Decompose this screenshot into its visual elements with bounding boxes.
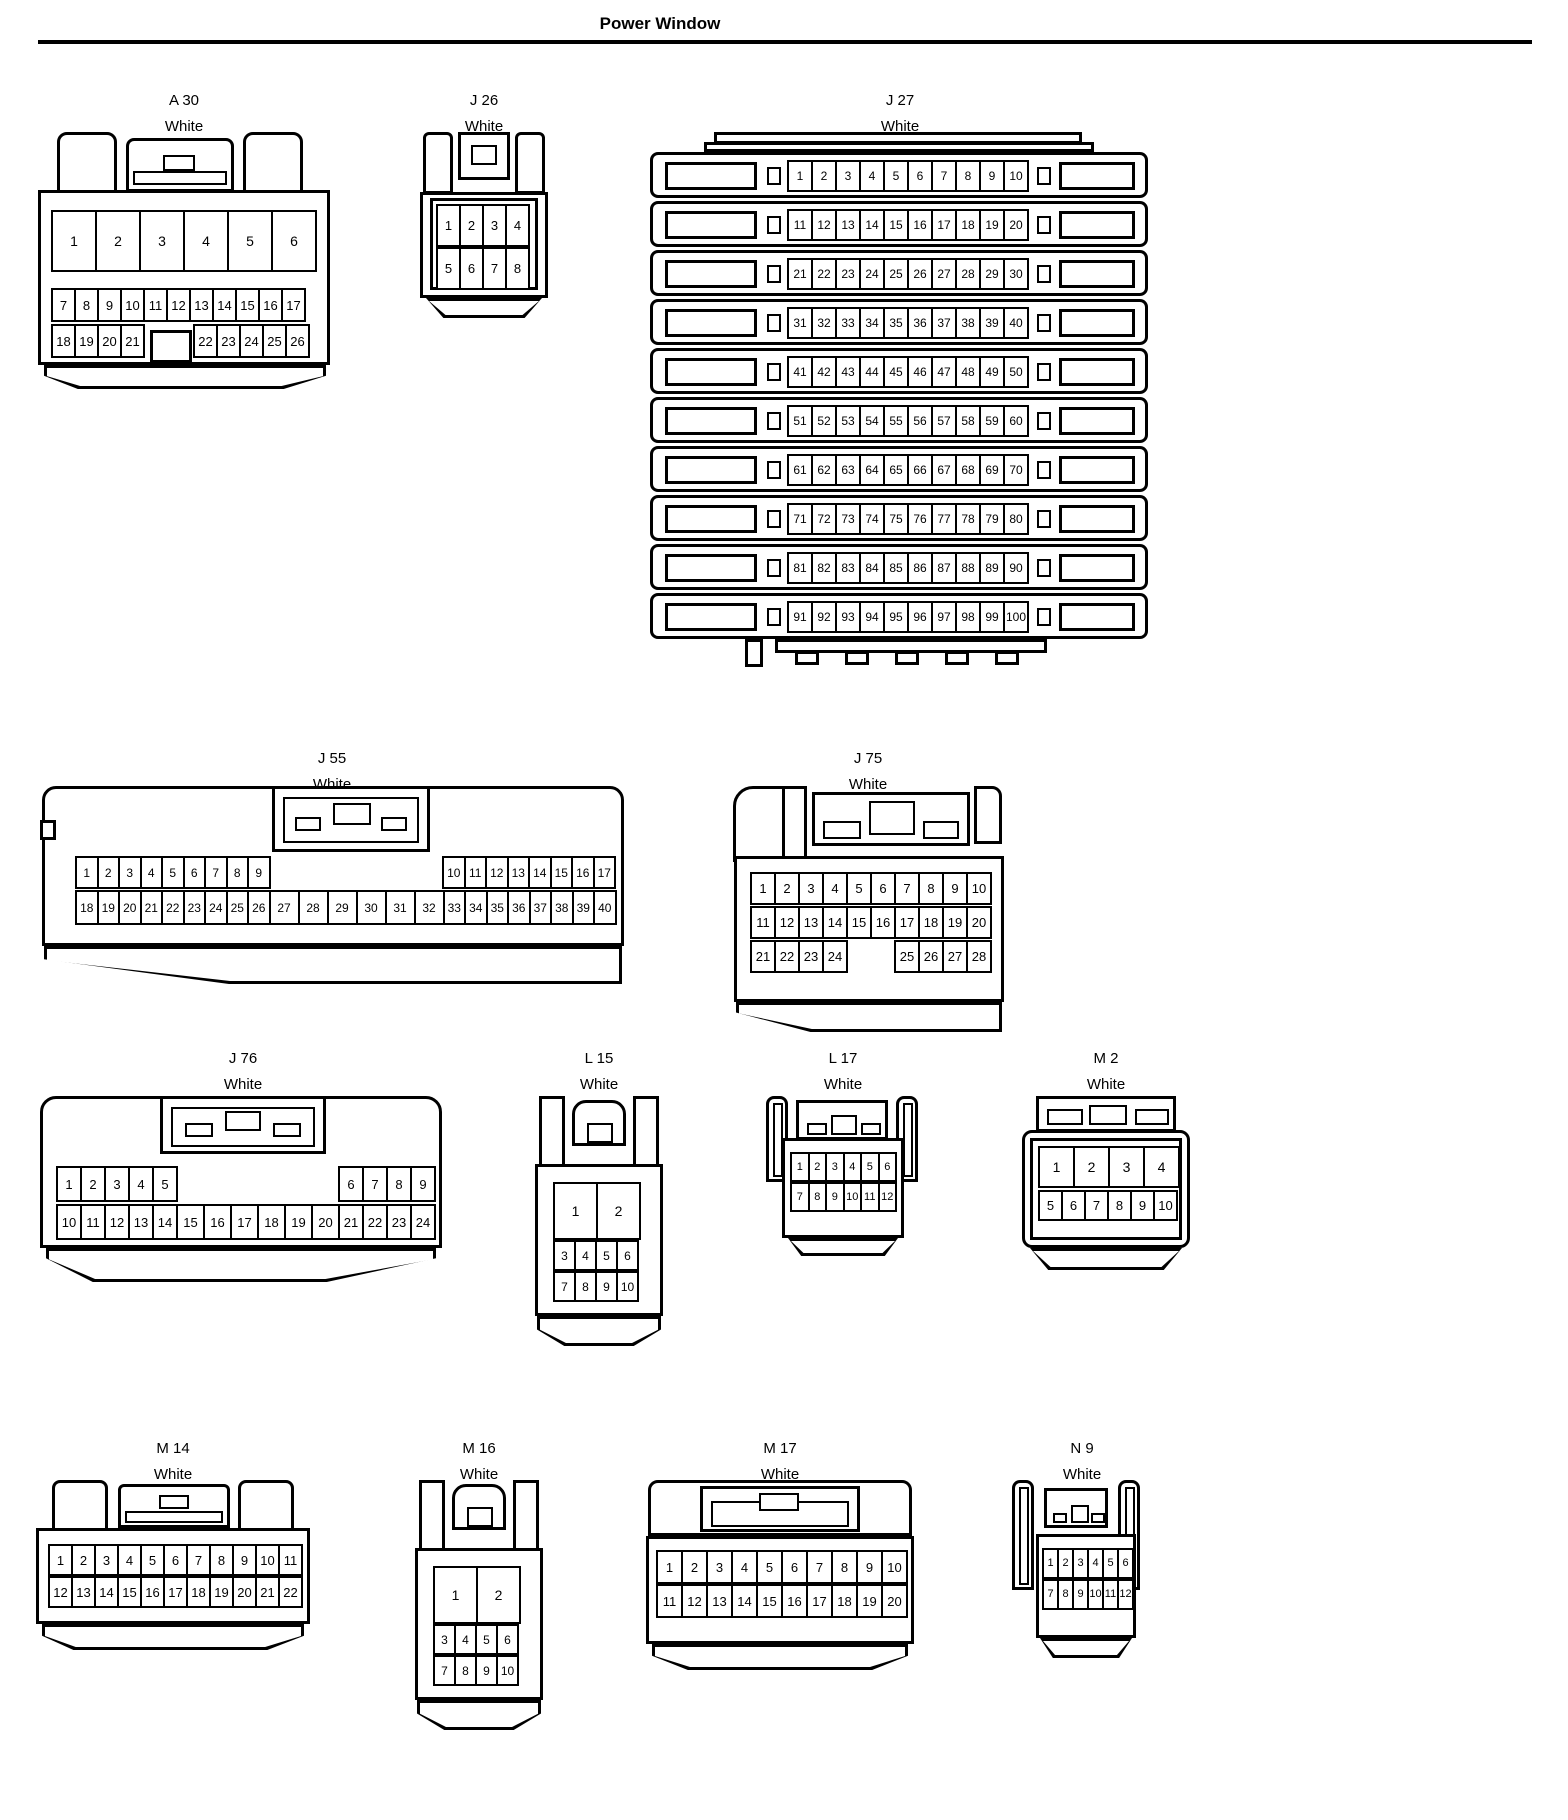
j27-row-right-square — [1037, 510, 1051, 528]
pin-cell: 9 — [247, 856, 271, 889]
pin-cell: 17 — [894, 906, 920, 939]
pin-cell: 5 — [1038, 1190, 1063, 1221]
j27-bottom-tooth — [795, 651, 819, 665]
pin-cell: 18 — [257, 1204, 286, 1240]
pin-cell: 66 — [907, 454, 933, 486]
pin-cell: 13 — [128, 1204, 154, 1240]
pin-cell: 6 — [1117, 1548, 1134, 1579]
j27-pin-row: 11121314151617181920 — [787, 209, 1029, 241]
pin-cell: 8 — [918, 872, 944, 905]
pin-cell: 2 — [1073, 1146, 1110, 1188]
pin-cell: 79 — [979, 503, 1005, 535]
l15-prong-left — [539, 1096, 565, 1168]
j27-row-right-square — [1037, 167, 1051, 185]
pin-cell: 96 — [907, 601, 933, 633]
pin-cell: 13 — [507, 856, 531, 889]
j26-pin-row-1: 1234 — [436, 204, 530, 247]
j27-row-right-box — [1059, 554, 1135, 582]
pin-cell: 24 — [204, 890, 228, 925]
pin-cell: 18 — [918, 906, 944, 939]
l15-pin-row-1: 12 — [553, 1182, 641, 1240]
connector-j76-label: J 76 — [229, 1050, 257, 1067]
a30-skirt — [44, 365, 326, 389]
pin-cell: 43 — [835, 356, 861, 388]
pin-cell: 23 — [386, 1204, 412, 1240]
pin-cell: 21 — [338, 1204, 364, 1240]
pin-cell: 8 — [386, 1166, 412, 1202]
j76-latch-side-right — [273, 1123, 301, 1137]
pin-cell: 4 — [140, 856, 164, 889]
j27-row-left-square — [767, 608, 781, 626]
l17-pin-row-1: 123456 — [790, 1152, 897, 1182]
pin-cell: 8 — [505, 247, 530, 290]
pin-cell: 8 — [574, 1271, 597, 1302]
pin-cell: 22 — [193, 324, 218, 358]
pin-cell: 16 — [907, 209, 933, 241]
pin-cell: 18 — [75, 890, 99, 925]
pin-cell: 20 — [232, 1576, 257, 1608]
pin-cell: 22 — [161, 890, 185, 925]
connector-j55-label: J 55 — [318, 750, 346, 767]
pin-cell: 34 — [464, 890, 488, 925]
m14-pin-row-2: 1213141516171819202122 — [48, 1576, 303, 1608]
a30-latch-band — [133, 171, 227, 185]
pin-cell: 1 — [48, 1544, 73, 1576]
pin-cell: 18 — [955, 209, 981, 241]
pin-cell: 21 — [120, 324, 145, 358]
j27-row: 51525354555657585960 — [650, 397, 1148, 443]
pin-cell: 19 — [284, 1204, 313, 1240]
j27-row: 71727374757677787980 — [650, 495, 1148, 541]
pin-cell: 25 — [262, 324, 287, 358]
pin-cell: 3 — [482, 204, 507, 247]
pin-cell: 37 — [931, 307, 957, 339]
n9-prong-left — [1012, 1480, 1034, 1590]
j27-row-left-box — [665, 554, 757, 582]
j75-tab-left-divider — [782, 789, 785, 859]
pin-cell: 14 — [152, 1204, 178, 1240]
pin-cell: 17 — [931, 209, 957, 241]
pin-cell: 4 — [117, 1544, 142, 1576]
pin-cell: 57 — [931, 405, 957, 437]
j27-pin-row: 81828384858687888990 — [787, 552, 1029, 584]
j27-row: 12345678910 — [650, 152, 1148, 198]
j75-tab-left — [733, 786, 807, 862]
pin-cell: 33 — [835, 307, 861, 339]
pin-cell: 19 — [979, 209, 1005, 241]
pin-cell: 15 — [117, 1576, 142, 1608]
j27-pin-row: 31323334353637383940 — [787, 307, 1029, 339]
pin-cell: 3 — [706, 1550, 733, 1584]
j26-skirt — [426, 298, 542, 318]
pin-cell: 31 — [385, 890, 416, 925]
pin-cell: 6 — [163, 1544, 188, 1576]
pin-cell: 25 — [883, 258, 909, 290]
pin-cell: 2 — [681, 1550, 708, 1584]
pin-cell: 35 — [883, 307, 909, 339]
pin-cell: 3 — [553, 1240, 576, 1271]
m16-latch — [452, 1484, 506, 1530]
pin-cell: 3 — [94, 1544, 119, 1576]
pin-cell: 35 — [486, 890, 510, 925]
m16-pin-row-1: 12 — [433, 1566, 521, 1624]
n9-latch-side-right — [1091, 1513, 1105, 1523]
m16-pin-row-2: 3456 — [433, 1624, 519, 1655]
pin-cell: 8 — [209, 1544, 234, 1576]
pin-cell: 6 — [338, 1166, 364, 1202]
pin-cell: 8 — [955, 160, 981, 192]
pin-cell: 5 — [846, 872, 872, 905]
pin-cell: 10 — [966, 872, 992, 905]
pin-cell: 18 — [51, 324, 76, 358]
pin-cell: 14 — [859, 209, 885, 241]
pin-cell: 4 — [1143, 1146, 1180, 1188]
pin-cell: 10 — [255, 1544, 280, 1576]
j27-row-left-box — [665, 358, 757, 386]
m17-latch-knob — [759, 1493, 799, 1511]
pin-cell: 32 — [811, 307, 837, 339]
m16-prong-right — [513, 1480, 539, 1552]
pin-cell: 23 — [798, 940, 824, 973]
j55-pin-row-1-left: 123456789 — [75, 856, 271, 889]
m2-latch-side-right — [1135, 1109, 1169, 1125]
pin-cell: 6 — [616, 1240, 639, 1271]
pin-cell: 37 — [529, 890, 553, 925]
pin-cell: 87 — [931, 552, 957, 584]
j27-bottom-tooth — [895, 651, 919, 665]
pin-cell: 28 — [955, 258, 981, 290]
j27-pin-row: 919293949596979899100 — [787, 601, 1029, 633]
pin-cell: 3 — [1108, 1146, 1145, 1188]
pin-cell: 2 — [97, 856, 121, 889]
pin-cell: 75 — [883, 503, 909, 535]
connector-n9-label: N 9 — [1070, 1440, 1093, 1457]
pin-cell: 44 — [859, 356, 885, 388]
pin-cell: 18 — [186, 1576, 211, 1608]
pin-cell: 36 — [907, 307, 933, 339]
l17-latch-knob — [831, 1115, 857, 1135]
j27-bottom-tooth — [995, 651, 1019, 665]
n9-latch-side-left — [1053, 1513, 1067, 1523]
m2-pin-row-1: 1234 — [1038, 1146, 1180, 1188]
pin-cell: 4 — [128, 1166, 154, 1202]
pin-cell: 41 — [787, 356, 813, 388]
pin-cell: 22 — [278, 1576, 303, 1608]
pin-cell: 33 — [443, 890, 467, 925]
j27-bottom-tooth — [845, 651, 869, 665]
pin-cell: 86 — [907, 552, 933, 584]
pin-cell: 15 — [550, 856, 574, 889]
m16-latch-knob — [467, 1507, 493, 1527]
pin-cell: 82 — [811, 552, 837, 584]
m17-latch — [700, 1486, 860, 1532]
m14-pin-row-1: 1234567891011 — [48, 1544, 303, 1576]
j27-pin-row: 41424344454647484950 — [787, 356, 1029, 388]
connector-l15-label: L 15 — [585, 1050, 614, 1067]
pin-cell: 1 — [75, 856, 99, 889]
pin-cell: 28 — [966, 940, 992, 973]
j55-latch — [272, 786, 430, 852]
pin-cell: 1 — [553, 1182, 598, 1240]
connector-n9-color: White — [1063, 1466, 1101, 1483]
j27-row-right-square — [1037, 216, 1051, 234]
pin-cell: 2 — [80, 1166, 106, 1202]
title-rule — [38, 40, 1532, 44]
pin-cell: 7 — [204, 856, 228, 889]
pin-cell: 98 — [955, 601, 981, 633]
j27-row-right-square — [1037, 412, 1051, 430]
pin-cell: 26 — [247, 890, 271, 925]
j75-skirt — [736, 1002, 1002, 1032]
pin-cell: 20 — [311, 1204, 340, 1240]
j27-row-left-square — [767, 314, 781, 332]
pin-cell: 14 — [212, 288, 237, 322]
j27-row-left-box — [665, 260, 757, 288]
pin-cell: 9 — [595, 1271, 618, 1302]
j27-row: 919293949596979899100 — [650, 593, 1148, 639]
pin-cell: 14 — [528, 856, 552, 889]
l17-pin-row-2: 789101112 — [790, 1182, 897, 1212]
pin-cell: 7 — [51, 288, 76, 322]
pin-cell: 12 — [878, 1182, 898, 1212]
m2-skirt — [1030, 1248, 1182, 1270]
j27-pin-row: 12345678910 — [787, 160, 1029, 192]
pin-cell: 26 — [285, 324, 310, 358]
j75-latch-knob — [869, 801, 915, 835]
pin-cell: 24 — [822, 940, 848, 973]
pin-cell: 80 — [1003, 503, 1029, 535]
pin-cell: 15 — [176, 1204, 205, 1240]
m14-tab-right — [238, 1480, 294, 1532]
j55-side-notch — [40, 820, 56, 840]
j27-row-left-square — [767, 216, 781, 234]
pin-cell: 12 — [166, 288, 191, 322]
pin-cell: 15 — [883, 209, 909, 241]
j27-row-left-square — [767, 363, 781, 381]
j27-row-left-box — [665, 603, 757, 631]
pin-cell: 84 — [859, 552, 885, 584]
pin-cell: 30 — [356, 890, 387, 925]
pin-cell: 40 — [1003, 307, 1029, 339]
pin-cell: 2 — [774, 872, 800, 905]
pin-cell: 92 — [811, 601, 837, 633]
j27-row-left-square — [767, 510, 781, 528]
a30-latch-knob — [163, 155, 195, 171]
pin-cell: 34 — [859, 307, 885, 339]
j27-row-left-box — [665, 407, 757, 435]
j75-tab-right — [974, 786, 1002, 844]
pin-cell: 40 — [593, 890, 617, 925]
pin-cell: 17 — [163, 1576, 188, 1608]
pin-cell: 7 — [553, 1271, 576, 1302]
pin-cell: 6 — [907, 160, 933, 192]
m14-skirt — [42, 1624, 304, 1650]
pin-cell: 11 — [80, 1204, 106, 1240]
pin-cell: 4 — [454, 1624, 477, 1655]
pin-cell: 1 — [1038, 1146, 1075, 1188]
pin-cell: 36 — [507, 890, 531, 925]
pin-cell: 24 — [410, 1204, 436, 1240]
pin-cell: 7 — [433, 1655, 456, 1686]
pin-cell: 45 — [883, 356, 909, 388]
m2-latch-knob — [1089, 1105, 1127, 1125]
j26-latch-knob — [471, 145, 497, 165]
connector-j75-label: J 75 — [854, 750, 882, 767]
j27-row-right-square — [1037, 363, 1051, 381]
pin-cell: 69 — [979, 454, 1005, 486]
pin-cell: 4 — [859, 160, 885, 192]
pin-cell: 17 — [593, 856, 617, 889]
pin-cell: 4 — [505, 204, 530, 247]
pin-cell: 23 — [835, 258, 861, 290]
j27-flange-bottom — [704, 142, 1094, 152]
pin-cell: 94 — [859, 601, 885, 633]
pin-cell: 21 — [255, 1576, 280, 1608]
a30-key-notch — [150, 330, 192, 363]
l15-prong-right — [633, 1096, 659, 1168]
pin-cell: 22 — [774, 940, 800, 973]
pin-cell: 99 — [979, 601, 1005, 633]
j27-row-right-box — [1059, 358, 1135, 386]
l17-prong-right-inner — [903, 1103, 913, 1177]
j27-pin-row: 51525354555657585960 — [787, 405, 1029, 437]
pin-cell: 39 — [979, 307, 1005, 339]
j76-latch-side-left — [185, 1123, 213, 1137]
pin-cell: 49 — [979, 356, 1005, 388]
pin-cell: 77 — [931, 503, 957, 535]
j27-pin-row: 21222324252627282930 — [787, 258, 1029, 290]
j27-row-right-box — [1059, 407, 1135, 435]
pin-cell: 11 — [750, 906, 776, 939]
pin-cell: 16 — [140, 1576, 165, 1608]
pin-cell: 8 — [454, 1655, 477, 1686]
pin-cell: 3 — [798, 872, 824, 905]
pin-cell: 8 — [831, 1550, 858, 1584]
pin-cell: 5 — [475, 1624, 498, 1655]
pin-cell: 48 — [955, 356, 981, 388]
j27-row-left-box — [665, 309, 757, 337]
pin-cell: 9 — [1130, 1190, 1155, 1221]
l17-latch-side-left — [807, 1123, 827, 1135]
pin-cell: 68 — [955, 454, 981, 486]
pin-cell: 61 — [787, 454, 813, 486]
pin-cell: 20 — [118, 890, 142, 925]
connector-l17-color: White — [824, 1076, 862, 1093]
j76-skirt — [46, 1248, 436, 1282]
pin-cell: 25 — [226, 890, 250, 925]
pin-cell: 27 — [931, 258, 957, 290]
j55-skirt — [44, 946, 622, 984]
pin-cell: 11 — [143, 288, 168, 322]
pin-cell: 88 — [955, 552, 981, 584]
pin-cell: 16 — [781, 1584, 808, 1618]
pin-cell: 9 — [410, 1166, 436, 1202]
pin-cell: 85 — [883, 552, 909, 584]
pin-cell: 14 — [822, 906, 848, 939]
pin-cell: 1 — [656, 1550, 683, 1584]
pin-cell: 22 — [362, 1204, 388, 1240]
j26-latch — [458, 132, 510, 180]
pin-cell: 62 — [811, 454, 837, 486]
pin-cell: 81 — [787, 552, 813, 584]
pin-cell: 6 — [870, 872, 896, 905]
pin-cell: 16 — [203, 1204, 232, 1240]
pin-cell: 6 — [878, 1152, 898, 1182]
pin-cell: 39 — [572, 890, 596, 925]
pin-cell: 17 — [281, 288, 306, 322]
pin-cell: 83 — [835, 552, 861, 584]
pin-cell: 54 — [859, 405, 885, 437]
j27-row-right-square — [1037, 559, 1051, 577]
j27-row-left-box — [665, 211, 757, 239]
pin-cell: 28 — [298, 890, 329, 925]
connector-a30-color: White — [165, 118, 203, 135]
m16-pin-row-3: 78910 — [433, 1655, 519, 1686]
n9-latch — [1044, 1488, 1108, 1528]
j76-pin-row-2: 101112131415161718192021222324 — [56, 1204, 436, 1240]
j75-latch-side-left — [823, 821, 861, 839]
pin-cell: 17 — [230, 1204, 259, 1240]
j27-row-right-box — [1059, 603, 1135, 631]
m14-latch-band — [125, 1511, 223, 1523]
pin-cell: 67 — [931, 454, 957, 486]
j27-row-right-square — [1037, 461, 1051, 479]
pin-cell: 64 — [859, 454, 885, 486]
pin-cell: 12 — [811, 209, 837, 241]
pin-cell: 9 — [232, 1544, 257, 1576]
pin-cell: 11 — [656, 1584, 683, 1618]
pin-cell: 4 — [574, 1240, 597, 1271]
n9-pin-row-1: 123456 — [1042, 1548, 1134, 1579]
pin-cell: 12 — [104, 1204, 130, 1240]
pin-cell: 59 — [979, 405, 1005, 437]
m2-latch — [1036, 1096, 1176, 1132]
connector-m16-label: M 16 — [462, 1440, 495, 1457]
pin-cell: 9 — [942, 872, 968, 905]
connector-j27-label: J 27 — [886, 92, 914, 109]
connector-m2-label: M 2 — [1093, 1050, 1118, 1067]
pin-cell: 5 — [152, 1166, 178, 1202]
pin-cell: 13 — [798, 906, 824, 939]
pin-cell: 18 — [831, 1584, 858, 1618]
pin-cell: 6 — [1061, 1190, 1086, 1221]
pin-cell: 19 — [942, 906, 968, 939]
pin-cell: 11 — [464, 856, 488, 889]
j27-row-left-box — [665, 505, 757, 533]
pin-cell: 14 — [731, 1584, 758, 1618]
connector-m2-color: White — [1087, 1076, 1125, 1093]
pin-cell: 60 — [1003, 405, 1029, 437]
connector-j75-color: White — [849, 776, 887, 793]
pin-cell: 10 — [120, 288, 145, 322]
pin-cell: 74 — [859, 503, 885, 535]
a30-latch — [126, 138, 234, 192]
pin-cell: 38 — [955, 307, 981, 339]
pin-cell: 9 — [856, 1550, 883, 1584]
pin-cell: 10 — [56, 1204, 82, 1240]
pin-cell: 10 — [616, 1271, 639, 1302]
j27-row-left-square — [767, 461, 781, 479]
pin-cell: 73 — [835, 503, 861, 535]
pin-cell: 10 — [1003, 160, 1029, 192]
pin-cell: 1 — [56, 1166, 82, 1202]
pin-cell: 31 — [787, 307, 813, 339]
j27-row-left-box — [665, 162, 757, 190]
pin-cell: 3 — [433, 1624, 456, 1655]
j27-row-right-box — [1059, 162, 1135, 190]
pin-cell: 47 — [931, 356, 957, 388]
m17-skirt — [652, 1644, 908, 1670]
